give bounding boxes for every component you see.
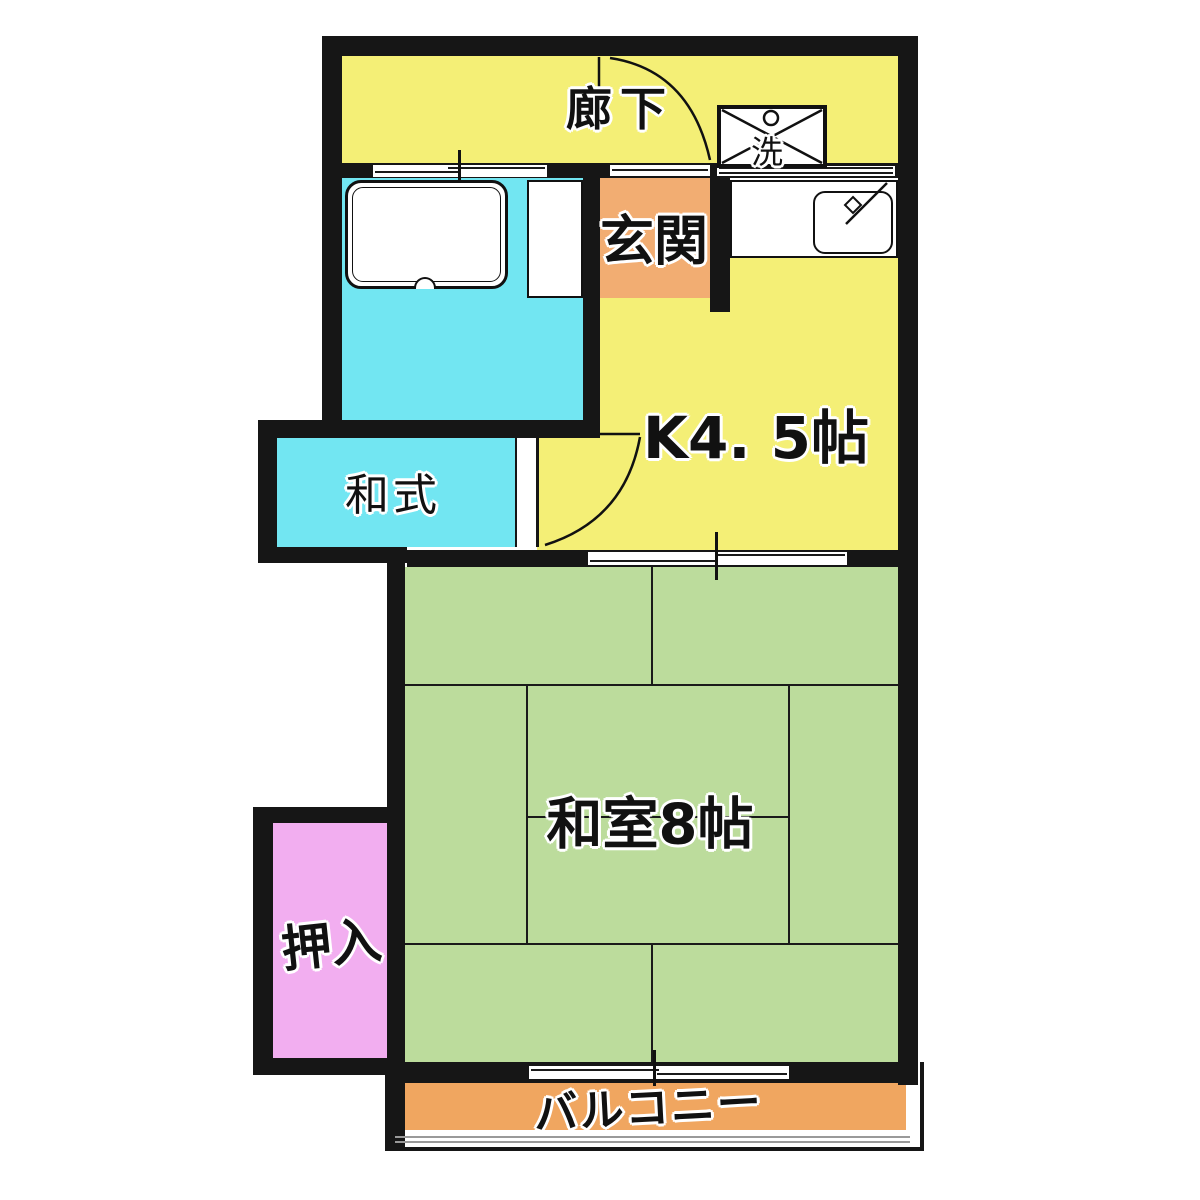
fixture-label-washing-machine: 洗 [751,127,783,173]
room-label-corridor: 廊下 [566,73,674,139]
plan-linework [0,0,1200,1200]
floorplan-canvas: 廊下 玄関 K4. 5帖 和式 和室8帖 押入 バルコニー 洗 [0,0,1200,1200]
room-label-closet: 押入 [278,900,385,982]
faucet-icon [845,183,887,224]
room-label-balcony: バルコニー [532,1066,764,1142]
room-label-kitchen: K4. 5帖 [643,391,869,475]
room-label-entrance: 玄関 [600,197,708,276]
room-label-toilet: 和式 [345,459,441,523]
door-swing-arc-icon [545,434,640,545]
room-label-tatami: 和室8帖 [547,780,754,861]
